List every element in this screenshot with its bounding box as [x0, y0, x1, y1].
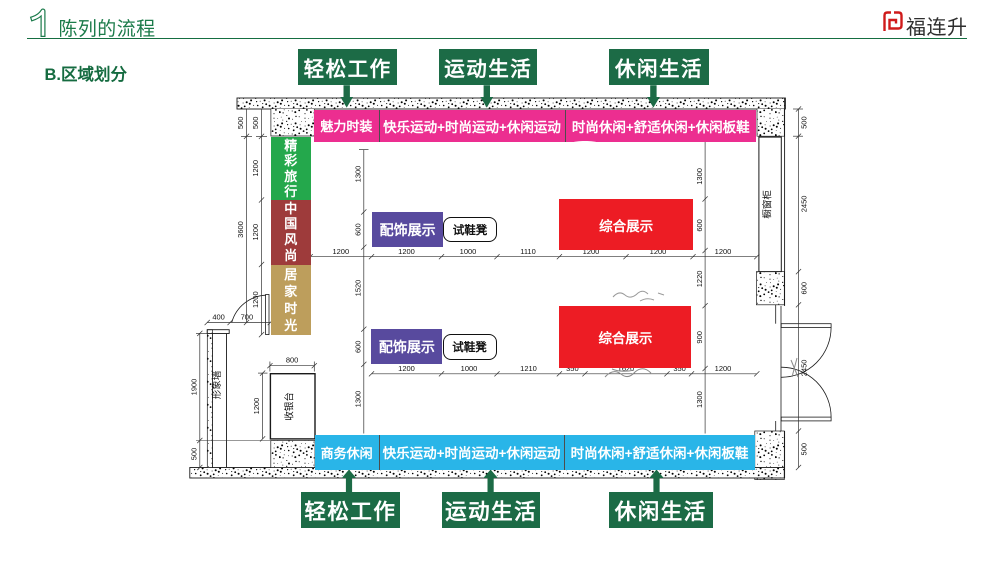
svg-text:1200: 1200 — [251, 160, 260, 177]
svg-text:1000: 1000 — [460, 247, 477, 256]
svg-text:500: 500 — [236, 117, 245, 130]
svg-text:1300: 1300 — [353, 166, 362, 183]
svg-text:800: 800 — [286, 356, 299, 365]
svg-text:2450: 2450 — [800, 196, 809, 213]
svg-text:600: 600 — [353, 223, 362, 236]
svg-text:500: 500 — [800, 116, 809, 129]
svg-text:500: 500 — [251, 117, 260, 130]
svg-text:1200: 1200 — [398, 247, 415, 256]
svg-text:1300: 1300 — [695, 391, 704, 408]
svg-text:3600: 3600 — [236, 221, 245, 238]
svg-text:1200: 1200 — [715, 247, 732, 256]
svg-text:1300: 1300 — [695, 168, 704, 185]
svg-text:橱窗柜: 橱窗柜 — [761, 190, 773, 219]
svg-text:400: 400 — [212, 312, 225, 321]
svg-text:1200: 1200 — [251, 291, 260, 308]
svg-text:500: 500 — [189, 448, 198, 461]
svg-text:1000: 1000 — [461, 364, 478, 373]
svg-text:2450: 2450 — [800, 360, 809, 377]
svg-text:600: 600 — [353, 341, 362, 354]
svg-text:1200: 1200 — [251, 224, 260, 241]
svg-text:形象墙: 形象墙 — [211, 370, 223, 399]
svg-text:600: 600 — [695, 219, 704, 232]
svg-text:收银台: 收银台 — [284, 392, 296, 421]
svg-text:1110: 1110 — [520, 247, 536, 256]
svg-text:1210: 1210 — [520, 364, 537, 373]
svg-text:1520: 1520 — [353, 280, 362, 297]
svg-text:900: 900 — [695, 331, 704, 344]
svg-text:600: 600 — [800, 282, 809, 295]
svg-text:700: 700 — [241, 312, 254, 321]
svg-text:1900: 1900 — [189, 379, 198, 396]
svg-text:1200: 1200 — [398, 364, 415, 373]
svg-text:1300: 1300 — [353, 391, 362, 408]
svg-text:500: 500 — [800, 443, 809, 456]
svg-text:1200: 1200 — [715, 364, 732, 373]
svg-text:1220: 1220 — [695, 271, 704, 288]
svg-text:1200: 1200 — [252, 398, 261, 415]
svg-text:1200: 1200 — [332, 247, 349, 256]
